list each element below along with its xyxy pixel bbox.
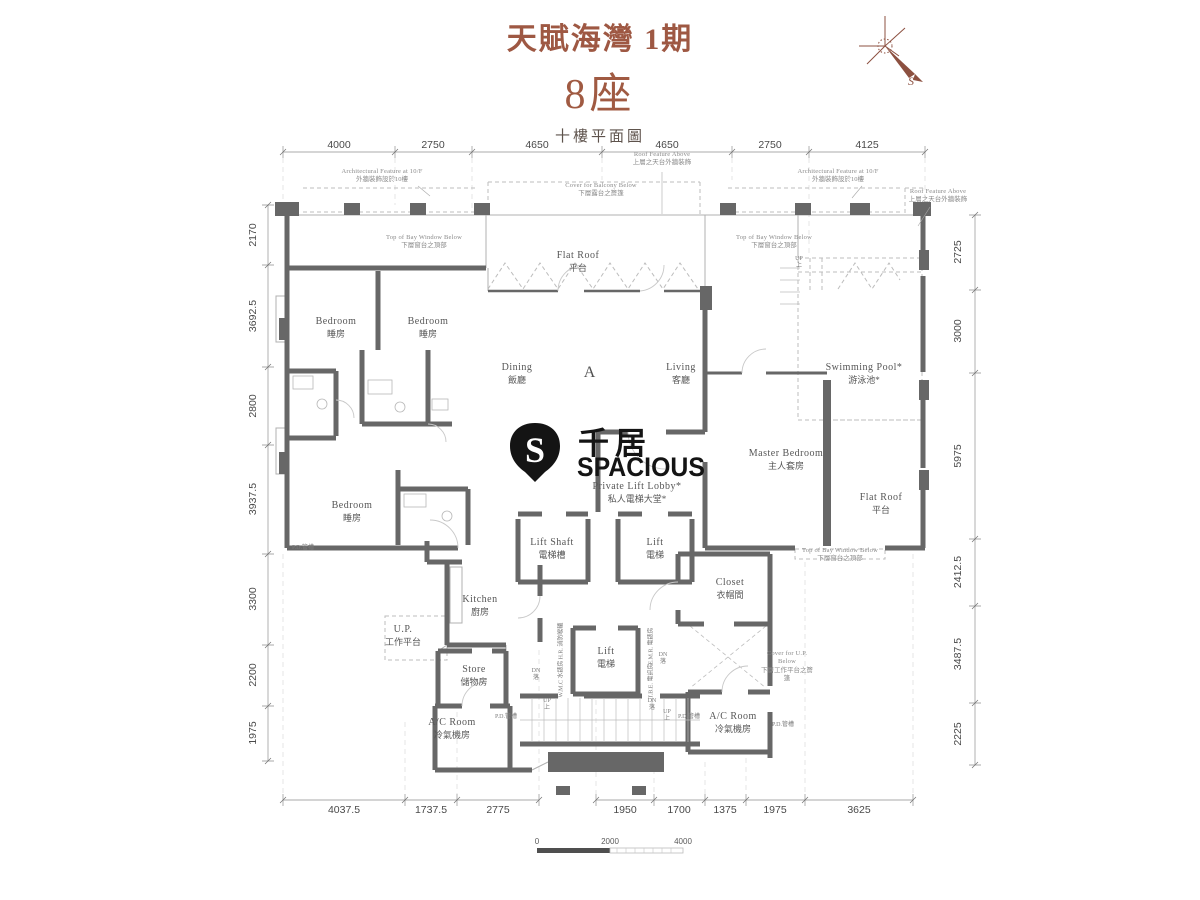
dim-left-7: 1975 <box>247 721 259 744</box>
annotation-roof-feature-top: Roof Feature Above 上層之天台外牆裝飾 <box>633 151 692 168</box>
dn-c-zh: 落 <box>648 705 657 712</box>
up-label-a: UP 上 <box>543 698 551 712</box>
room-label-bedroom-a: Bedroom 睡房 <box>316 316 357 340</box>
room-label-lift-shaft: Lift Shaft 電梯槽 <box>530 537 574 561</box>
bedroom-a-zh: 睡房 <box>316 329 357 340</box>
flat-roof-right-zh: 平台 <box>860 505 903 516</box>
bay-window-right-zh: 下層窗台之頂部 <box>736 242 812 250</box>
roof-feature-top-zh: 上層之天台外牆裝飾 <box>633 159 692 167</box>
swimming-pool-en: Swimming Pool* <box>826 362 903 375</box>
lift-upper-en: Lift <box>646 537 664 550</box>
room-label-store: Store 儲物房 <box>460 664 487 688</box>
dn-a-zh: 落 <box>532 675 541 682</box>
dim-bottom-2: 1737.5 <box>415 804 447 816</box>
tower-title: 8座 <box>0 60 1200 121</box>
flat-roof-top-zh: 平台 <box>557 263 600 274</box>
cover-up-en: Cover for U.P. Below <box>761 650 813 667</box>
lift-shaft-zh: 電梯槽 <box>530 550 574 561</box>
flat-roof-right-en: Flat Roof <box>860 492 903 505</box>
title-block: 天賦海灣 1期 8座 十樓平面圖 <box>0 0 1200 146</box>
lift-upper-zh: 電梯 <box>646 550 664 561</box>
annotation-bay-window-left: Top of Bay Window Below 下層窗台之頂部 <box>386 234 462 251</box>
up-pool-en: UP <box>795 256 803 263</box>
room-label-ac-room-right: A/C Room 冷氣機房 <box>709 711 757 735</box>
bedroom-b-en: Bedroom <box>408 316 449 329</box>
store-zh: 儲物房 <box>460 677 487 688</box>
up-label-b: UP 上 <box>663 709 671 723</box>
room-label-living: Living 客廳 <box>666 362 696 386</box>
dn-label-c: DN 落 <box>648 698 657 712</box>
room-label-bedroom-b: Bedroom 睡房 <box>408 316 449 340</box>
flat-letter: A <box>584 364 597 382</box>
room-label-flat-roof-right: Flat Roof 平台 <box>860 492 903 516</box>
room-label-closet: Closet 衣帽間 <box>716 577 745 601</box>
dim-top-3: 4650 <box>525 139 548 151</box>
up-a-en: UP <box>543 698 551 705</box>
store-en: Store <box>460 664 487 677</box>
up-b-en: UP <box>663 709 671 716</box>
dim-top-6: 4125 <box>855 139 878 151</box>
dn-a-en: DN <box>532 668 541 675</box>
master-bedroom-zh: 主人套房 <box>749 461 824 472</box>
dn-b-zh: 落 <box>659 659 668 666</box>
private-lift-lobby-en: Private Lift Lobby* <box>593 481 682 494</box>
scale-label-2000: 2000 <box>601 837 619 846</box>
telecom-label: T.B.E. 電訊房 <box>646 664 655 699</box>
room-label-dining: Dining 飯廳 <box>502 362 533 386</box>
closet-zh: 衣帽間 <box>716 590 745 601</box>
room-label-lift-upper: Lift 電梯 <box>646 537 664 561</box>
annotation-arch-feature-right: Architectural Feature at 10/F 外牆裝飾設於10樓 <box>797 168 878 185</box>
floor-subtitle: 十樓平面圖 <box>0 125 1200 146</box>
annotation-roof-feature-corner: Roof Feature Above 上層之天台外牆裝飾 <box>909 188 968 205</box>
dining-en: Dining <box>502 362 533 375</box>
project-title: 天賦海灣 1期 <box>0 14 1200 58</box>
dn-label-b: DN 落 <box>659 652 668 666</box>
dim-bottom-7: 1975 <box>763 804 786 816</box>
room-label-flat-roof-top: Flat Roof 平台 <box>557 250 600 274</box>
ac-room-left-en: A/C Room <box>428 717 476 730</box>
cover-up-zh: 下層工作平台之簷篷 <box>761 667 813 684</box>
up-label-pool: UP 上 <box>795 256 803 270</box>
living-zh: 客廳 <box>666 375 696 386</box>
pd-label-3: P.D.管槽 <box>678 714 700 721</box>
arch-feature-left-zh: 外牆裝飾設於10樓 <box>341 176 422 184</box>
hose-reel-label: H.R. 消防喉轆 <box>556 623 565 660</box>
bay-window-left-zh: 下層窗台之頂部 <box>386 242 462 250</box>
dim-top-4: 4650 <box>655 139 678 151</box>
flat-roof-top-en: Flat Roof <box>557 250 600 263</box>
annotation-cover-up: Cover for U.P. Below 下層工作平台之簷篷 <box>761 650 813 684</box>
closet-en: Closet <box>716 577 745 590</box>
dim-bottom-6: 1375 <box>713 804 736 816</box>
dn-label-a: DN 落 <box>532 668 541 682</box>
room-label-swimming-pool: Swimming Pool* 游泳池* <box>826 362 903 386</box>
up-pool-zh: 上 <box>795 263 803 270</box>
dim-bottom-1: 4037.5 <box>328 804 360 816</box>
spacious-logo-badge: S <box>506 421 564 485</box>
up-a-zh: 上 <box>543 705 551 712</box>
dim-right-5: 3487.5 <box>952 638 964 670</box>
arch-feature-right-zh: 外牆裝飾設於10樓 <box>797 176 878 184</box>
scale-label-0: 0 <box>535 837 539 846</box>
dim-right-4: 2412.5 <box>952 556 964 588</box>
annotation-bay-window-right: Top of Bay Window Below 下層窗台之頂部 <box>736 234 812 251</box>
bedroom-c-zh: 睡房 <box>332 513 373 524</box>
kitchen-en: Kitchen <box>462 594 497 607</box>
private-lift-lobby-zh: 私人電梯大堂* <box>593 494 682 505</box>
swimming-pool-zh: 游泳池* <box>826 375 903 386</box>
room-label-private-lift-lobby: Private Lift Lobby* 私人電梯大堂* <box>593 481 682 505</box>
utility-platform-en: U.P. <box>385 624 421 637</box>
pd-label-1: P.D.管槽 <box>292 545 314 552</box>
ac-room-left-zh: 冷氣機房 <box>428 730 476 741</box>
dim-left-6: 2200 <box>247 663 259 686</box>
cover-balcony-zh: 下層露台之簷篷 <box>565 190 637 198</box>
dim-left-5: 3300 <box>247 587 259 610</box>
ac-room-right-en: A/C Room <box>709 711 757 724</box>
pd-label-4: P.D.管槽 <box>772 722 794 729</box>
scale-label-4000: 4000 <box>674 837 692 846</box>
room-label-kitchen: Kitchen 廚房 <box>462 594 497 618</box>
water-meter-label: W.M.C 水錶房 <box>556 661 565 698</box>
dim-top-2: 2750 <box>421 139 444 151</box>
dn-c-en: DN <box>648 698 657 705</box>
dim-bottom-5: 1700 <box>667 804 690 816</box>
logo-badge-letter: S <box>525 430 545 470</box>
roof-feature-corner-zh: 上層之天台外牆裝飾 <box>909 196 968 204</box>
annotation-arch-feature-left: Architectural Feature at 10/F 外牆裝飾設於10樓 <box>341 168 422 185</box>
room-label-utility-platform: U.P. 工作平台 <box>385 624 421 648</box>
dim-bottom-3: 2775 <box>486 804 509 816</box>
room-label-ac-room-left: A/C Room 冷氣機房 <box>428 717 476 741</box>
compass-icon <box>845 8 955 108</box>
up-b-zh: 上 <box>663 716 671 723</box>
dining-zh: 飯廳 <box>502 375 533 386</box>
annotation-cover-balcony: Cover for Balcony Below 下層露台之簷篷 <box>565 182 637 199</box>
dim-left-3: 2800 <box>247 394 259 417</box>
dim-right-3: 5975 <box>952 444 964 467</box>
utility-platform-zh: 工作平台 <box>385 637 421 648</box>
floor-plan-page: 天賦海灣 1期 8座 十樓平面圖 S S 千居 SPACIOUS 4000 27… <box>0 0 1200 900</box>
room-label-lift-lower: Lift 電梯 <box>597 646 615 670</box>
dim-left-1: 2170 <box>247 223 259 246</box>
dim-left-2: 3692.5 <box>247 300 259 332</box>
pd-label-2: P.D.管槽 <box>495 714 517 721</box>
dim-right-2: 3000 <box>952 319 964 342</box>
ac-room-right-zh: 冷氣機房 <box>709 724 757 735</box>
dim-bottom-8: 3625 <box>847 804 870 816</box>
logo-latin-text: SPACIOUS <box>577 452 705 483</box>
dim-bottom-4: 1950 <box>613 804 636 816</box>
scale-bar <box>537 848 683 853</box>
bay-window-bottom-zh: 下層窗台之頂部 <box>802 555 878 563</box>
annotation-bay-window-bottom: Top of Bay Window Below 下層窗台之頂部 <box>802 547 878 564</box>
bedroom-b-zh: 睡房 <box>408 329 449 340</box>
room-label-master-bedroom: Master Bedroom 主人套房 <box>749 448 824 472</box>
lift-lower-en: Lift <box>597 646 615 659</box>
room-label-bedroom-c: Bedroom 睡房 <box>332 500 373 524</box>
dim-right-6: 2225 <box>952 722 964 745</box>
bedroom-c-en: Bedroom <box>332 500 373 513</box>
elec-meter-label: E.M.R. 電錶房 <box>646 627 655 664</box>
dim-right-1: 2725 <box>952 240 964 263</box>
living-en: Living <box>666 362 696 375</box>
kitchen-zh: 廚房 <box>462 607 497 618</box>
compass-south-label: S <box>908 74 914 89</box>
lift-shaft-en: Lift Shaft <box>530 537 574 550</box>
bedroom-a-en: Bedroom <box>316 316 357 329</box>
dim-left-4: 3937.5 <box>247 483 259 515</box>
master-bedroom-en: Master Bedroom <box>749 448 824 461</box>
dim-top-1: 4000 <box>327 139 350 151</box>
dim-top-5: 2750 <box>758 139 781 151</box>
dn-b-en: DN <box>659 652 668 659</box>
lift-lower-zh: 電梯 <box>597 659 615 670</box>
